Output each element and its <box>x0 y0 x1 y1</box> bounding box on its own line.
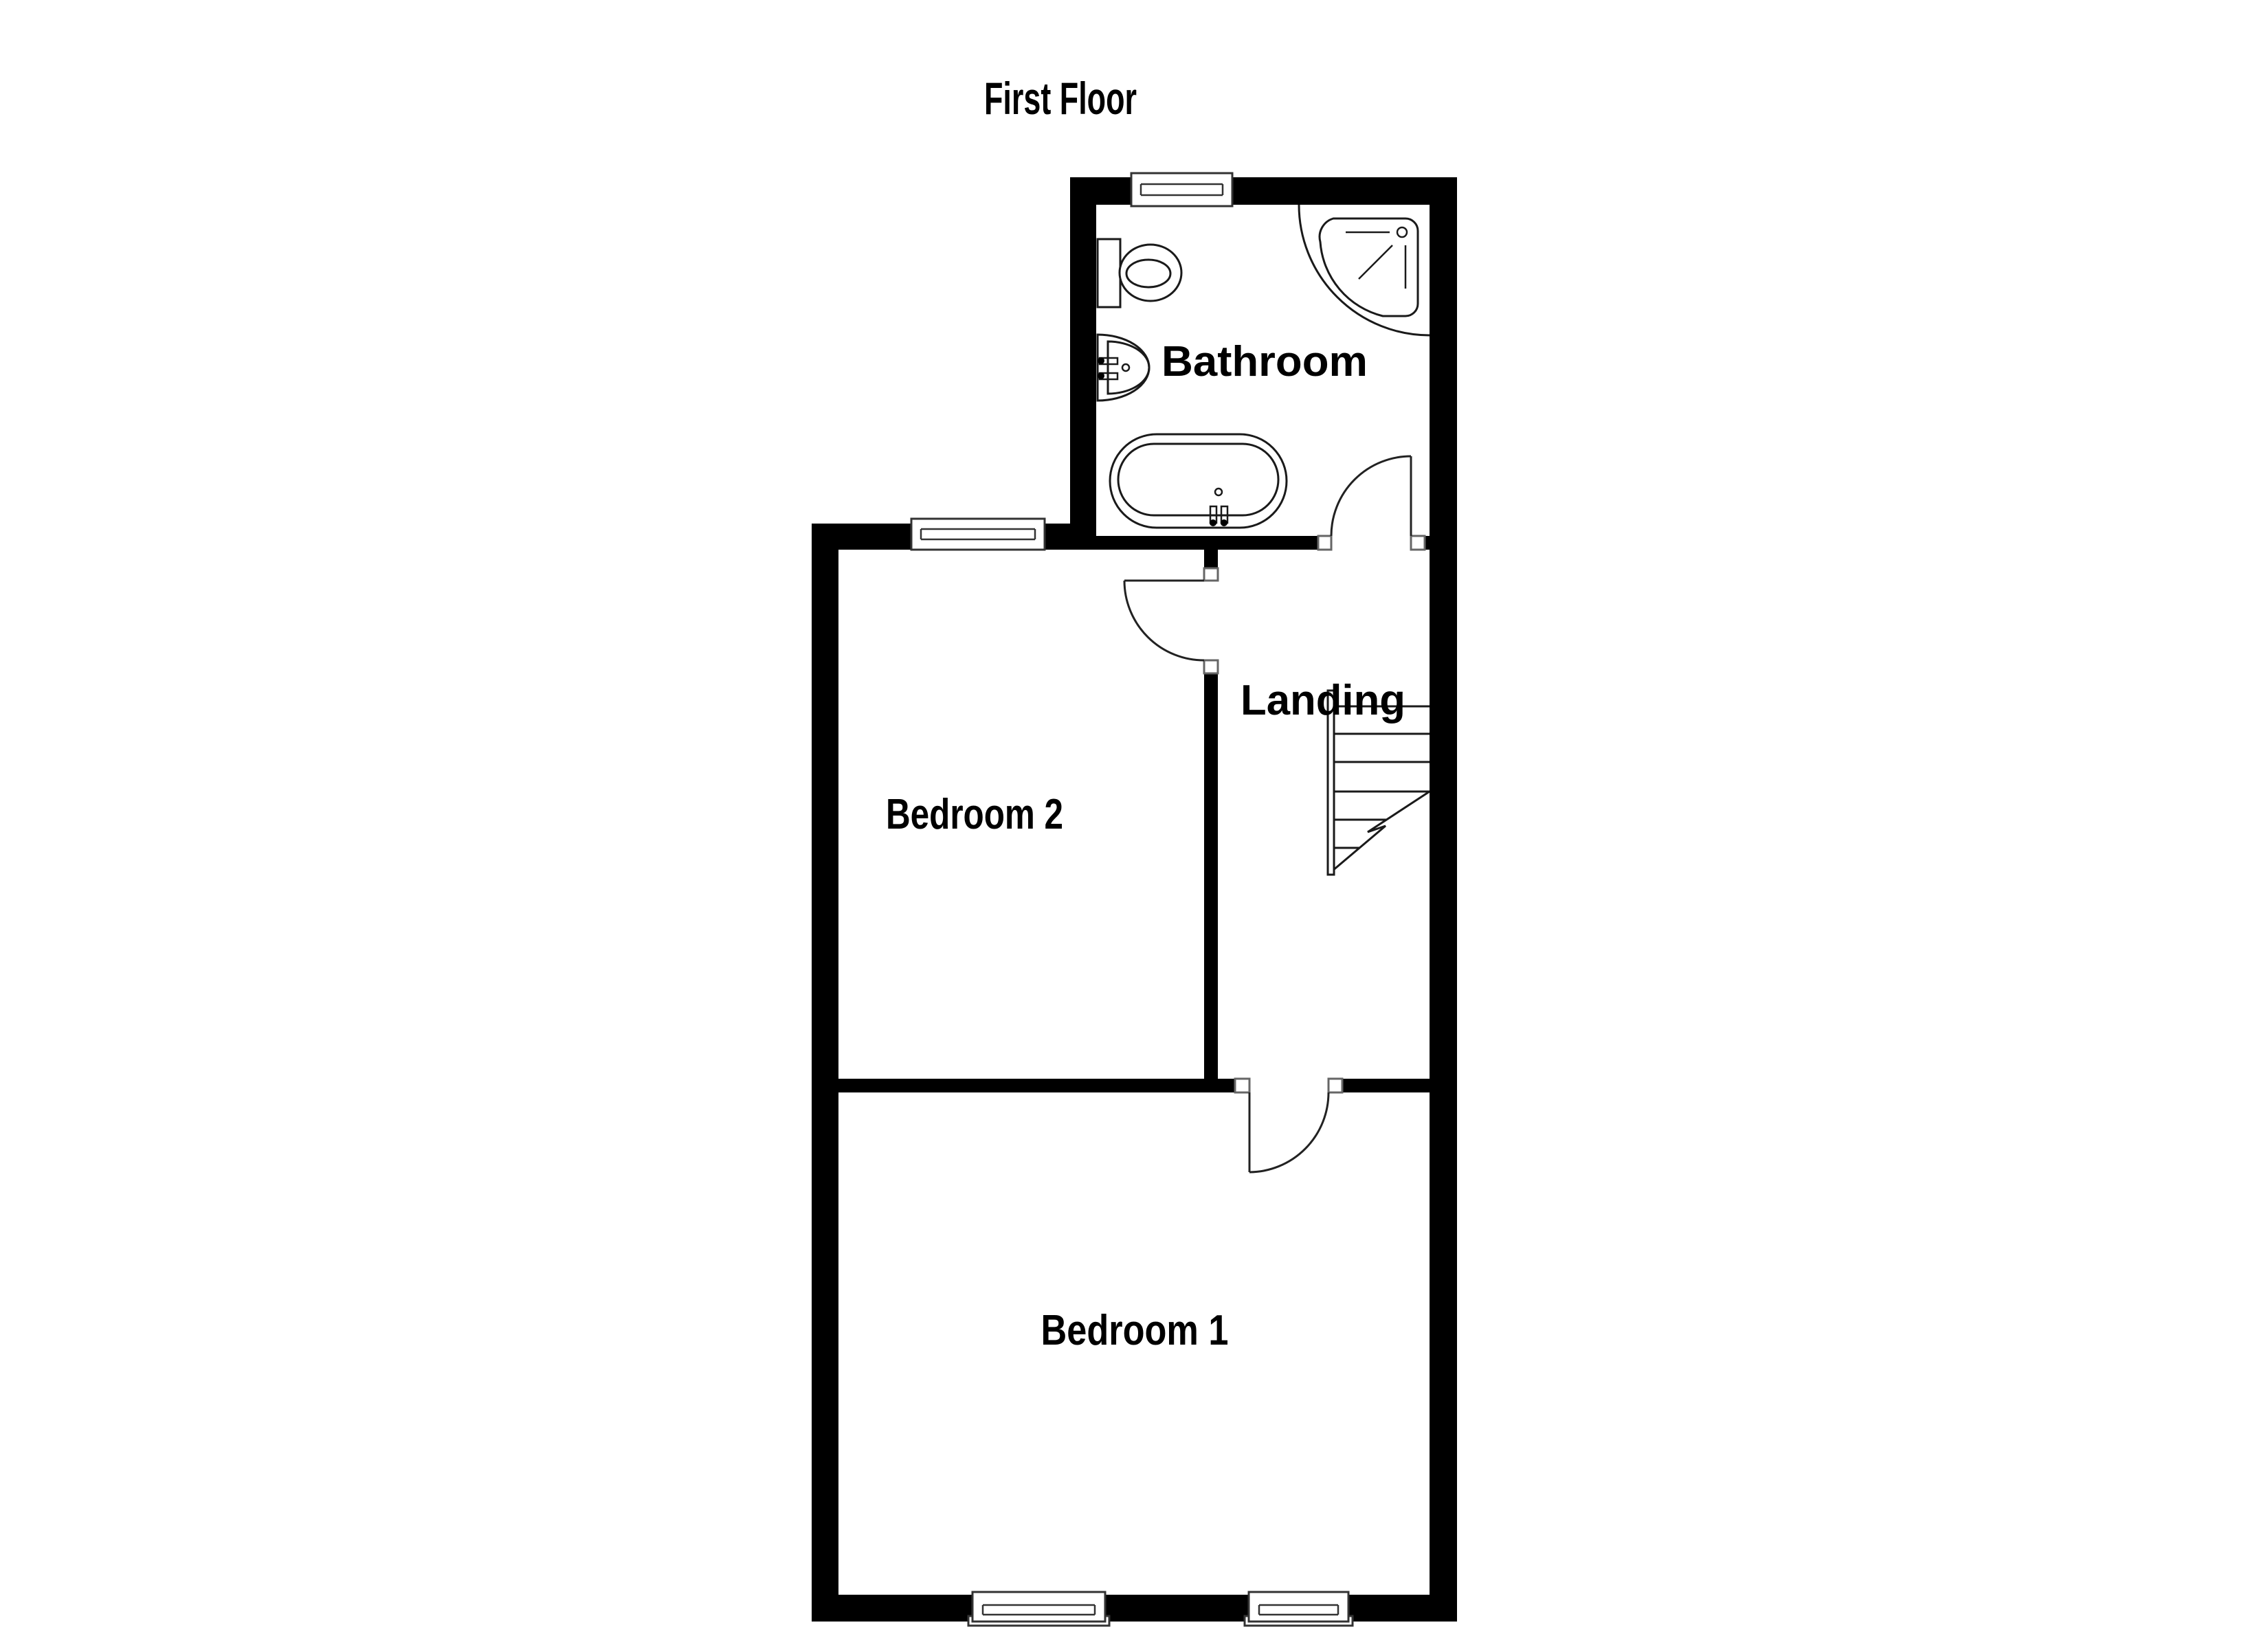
room-label-landing: Landing <box>1241 677 1405 724</box>
window-bedroom1-left <box>968 1592 1109 1626</box>
wall-bathroom-bottom <box>1096 536 1318 550</box>
wall-partition-stub <box>1204 550 1218 568</box>
floor-plan-svg: First Floor Bathroom Landing Bedroom 2 B… <box>0 0 2268 1649</box>
wall-bathroom-left <box>1070 177 1096 550</box>
bathtub-fixture <box>1110 434 1287 528</box>
room-label-bedroom1: Bedroom 1 <box>1041 1307 1229 1354</box>
room-label-bathroom: Bathroom <box>1161 338 1368 385</box>
wall-right-exterior <box>1430 177 1457 1622</box>
window-bedroom1-right <box>1245 1592 1353 1626</box>
plan-background <box>0 0 2268 1649</box>
page-title: First Floor <box>984 73 1137 124</box>
wall-bathroom-top <box>1070 177 1457 205</box>
wall-partition-main <box>1204 673 1218 1092</box>
wall-bedroom1-top-right <box>1342 1079 1457 1092</box>
wall-bedroom1-top-left <box>812 1079 1235 1092</box>
wall-left-exterior <box>812 524 838 1622</box>
room-label-bedroom2: Bedroom 2 <box>886 791 1063 838</box>
wall-bottom-exterior <box>812 1595 1457 1622</box>
window-bedroom2 <box>911 519 1045 550</box>
window-bathroom <box>1131 173 1232 206</box>
